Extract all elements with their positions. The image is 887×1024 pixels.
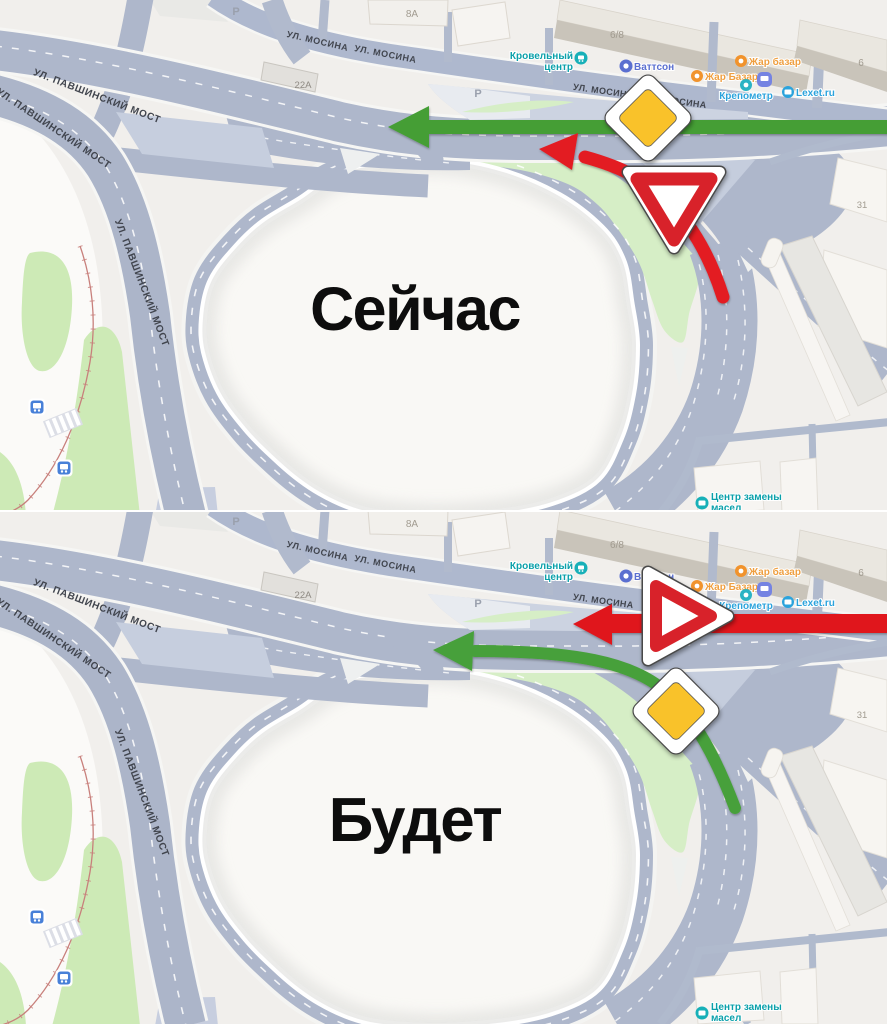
svg-text:Центр замены: Центр замены (711, 492, 782, 503)
svg-text:22А: 22А (295, 80, 313, 91)
svg-text:Р: Р (232, 6, 239, 18)
svg-text:центр: центр (544, 62, 573, 73)
svg-text:Сейчас: Сейчас (310, 275, 520, 343)
svg-text:Жар базар: Жар базар (748, 56, 801, 68)
svg-text:6: 6 (858, 58, 864, 69)
svg-text:Крепометр: Крепометр (719, 91, 773, 102)
svg-text:6/8: 6/8 (610, 30, 624, 41)
svg-text:31: 31 (857, 200, 868, 211)
svg-text:Р: Р (474, 88, 481, 100)
svg-text:Lexet.ru: Lexet.ru (796, 88, 835, 99)
svg-text:8А: 8А (406, 9, 419, 20)
svg-text:Будет: Будет (329, 786, 502, 855)
svg-text:Кровельный: Кровельный (510, 51, 573, 62)
svg-text:Ваттсон: Ваттсон (634, 62, 674, 73)
